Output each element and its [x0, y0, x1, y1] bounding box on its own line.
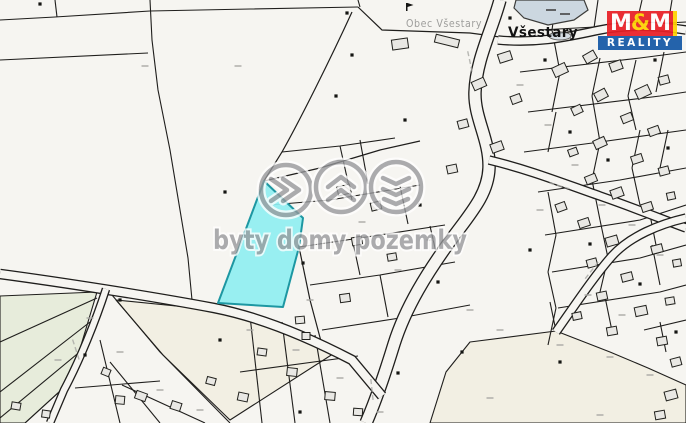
cadastral-map-screenshot: { "canvas":{ "width":686,"height":423, "… — [0, 0, 686, 423]
building — [457, 119, 469, 129]
building — [353, 408, 362, 416]
building — [257, 348, 267, 356]
building — [391, 38, 408, 50]
watermark: byty domy pozemky — [213, 162, 467, 256]
building — [606, 326, 617, 336]
building — [446, 164, 457, 174]
building — [647, 125, 660, 136]
building — [583, 50, 598, 64]
building — [656, 336, 667, 346]
building — [237, 392, 248, 402]
layers-icon — [371, 162, 421, 212]
map-symbol — [406, 3, 414, 11]
building — [672, 259, 681, 267]
building — [287, 367, 298, 376]
roof-icon — [316, 162, 366, 212]
watermark-text: byty domy pozemky — [213, 225, 467, 256]
building — [101, 367, 111, 376]
building — [295, 316, 305, 324]
building — [339, 293, 350, 302]
building — [594, 88, 609, 102]
town-label: Všestary — [508, 25, 578, 41]
building — [510, 94, 522, 105]
municipality-label: Obec Všestary — [406, 18, 482, 30]
building — [42, 410, 51, 418]
building — [578, 217, 591, 228]
building — [593, 136, 608, 149]
building — [11, 402, 21, 410]
building — [325, 392, 336, 401]
building — [596, 291, 607, 301]
building — [610, 187, 624, 200]
building — [670, 357, 682, 367]
building — [666, 192, 675, 201]
building — [621, 272, 634, 282]
building — [658, 75, 670, 85]
building — [586, 258, 598, 268]
building — [497, 51, 512, 64]
building — [568, 147, 579, 157]
building — [552, 63, 569, 78]
map-image: Obec Všestary Všestary byty d — [0, 0, 686, 423]
building — [170, 401, 182, 412]
building — [665, 297, 675, 305]
building — [434, 34, 459, 48]
building — [631, 153, 644, 164]
building — [634, 305, 648, 316]
building — [555, 202, 567, 213]
building — [302, 333, 310, 340]
building — [115, 396, 125, 405]
building — [620, 112, 633, 124]
cadastral-map-svg: Obec Všestary Všestary byty d — [0, 0, 686, 423]
building — [134, 390, 147, 401]
building — [654, 410, 665, 420]
building — [572, 312, 582, 321]
